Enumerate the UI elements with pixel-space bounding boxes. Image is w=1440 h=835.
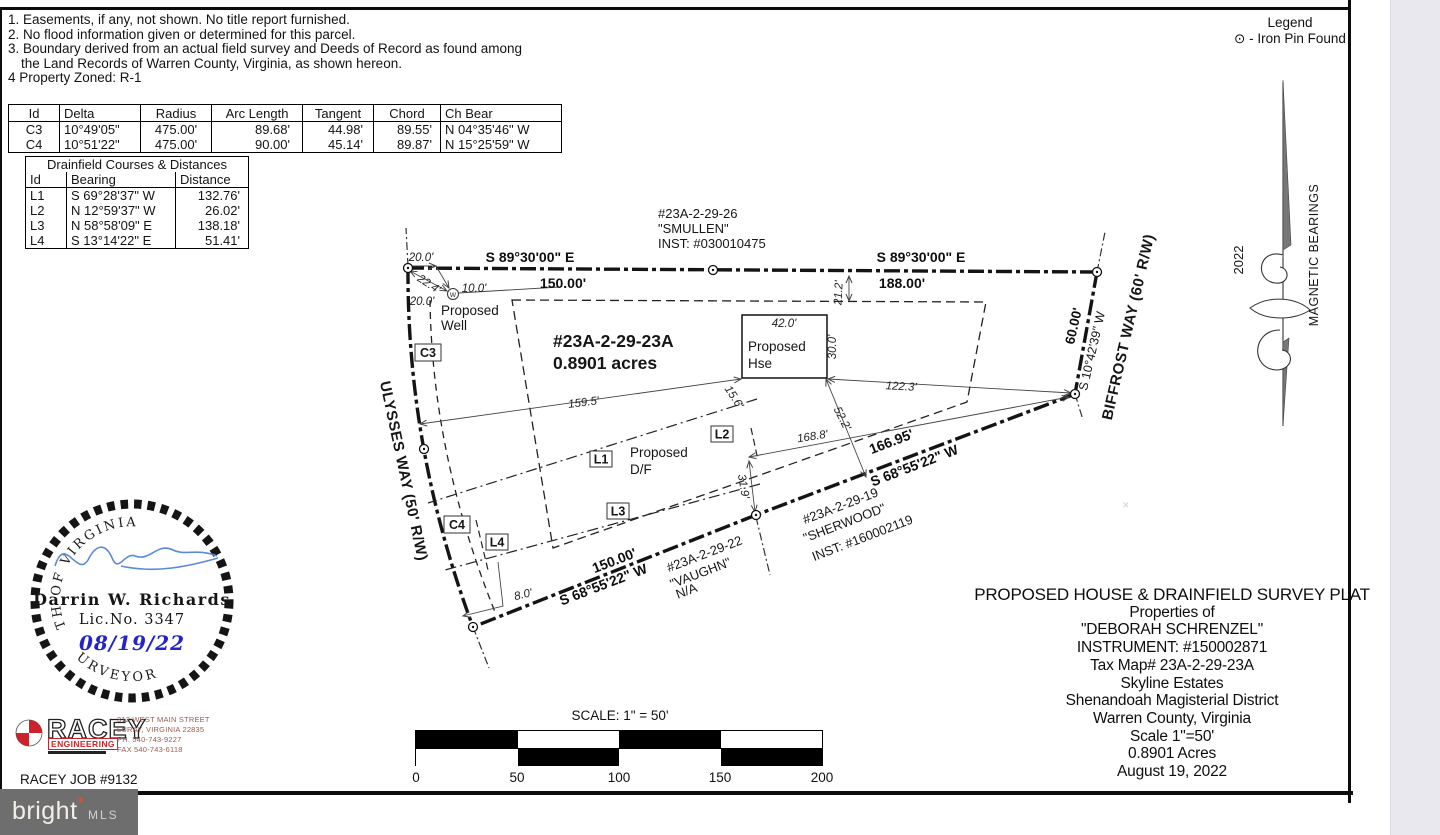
iron-pin-icon <box>404 264 413 273</box>
plat-title: PROPOSED HOUSE & DRAINFIELD SURVEY PLAT <box>973 586 1371 604</box>
scale-tick: 0 <box>412 770 420 785</box>
plat-date: August 19, 2022 <box>973 763 1371 781</box>
cell-id: L4 <box>26 233 67 249</box>
scale-bar-graphic <box>415 730 823 766</box>
cell-id: L1 <box>26 188 67 204</box>
boundary-south-east <box>756 394 1075 515</box>
col-header: Delta <box>60 105 141 122</box>
curve-table-row: C4 10°51'22" 475.00' 90.00' 45.14' 89.87… <box>9 137 562 153</box>
north-arrow-year: 2022 <box>1231 246 1246 275</box>
cell-radius: 475.00' <box>141 122 212 138</box>
magnetic-bearings-label: MAGNETIC BEARINGS <box>1307 184 1321 327</box>
cell-bearing: N 12°59'37" W <box>67 203 176 218</box>
surveyor-seal: COMMONWEALTH OF VIRGINIA LAND SURVEYOR D… <box>25 494 240 709</box>
course-tag-l2: L2 <box>715 428 730 442</box>
cell-id: L2 <box>26 203 67 218</box>
cell-chord: 89.87' <box>374 137 441 153</box>
col-header: Tangent <box>303 105 374 122</box>
cell-delta: 10°51'22" <box>60 137 141 153</box>
cell-tangent: 44.98' <box>303 122 374 138</box>
house-depth: 30.0' <box>827 334 839 359</box>
title-block: PROPOSED HOUSE & DRAINFIELD SURVEY PLAT … <box>973 586 1371 781</box>
viewer-right-margin <box>1390 0 1440 835</box>
dim-8-0: 8.0' <box>513 587 534 603</box>
district-name: Shenandoah Magisterial District <box>973 692 1371 710</box>
brightmls-star-icon: ✶ <box>76 794 85 807</box>
cell-id: C3 <box>9 122 60 138</box>
scale-segment <box>416 749 518 766</box>
scale-tick: 200 <box>811 770 834 785</box>
cell-bearing: S 69°28'37" W <box>67 188 176 204</box>
north-bearing-east: S 89°30'00" E <box>877 249 966 265</box>
col-header: Distance <box>176 172 249 188</box>
iron-pin-icon <box>709 266 718 275</box>
note-line: 1. Easements, if any, not shown. No titl… <box>8 13 522 28</box>
racey-address-line: 312 WEST MAIN STREET <box>117 715 210 725</box>
col-header: Id <box>9 105 60 122</box>
well-dim-224: 22.4' <box>414 272 443 296</box>
curve-table-row: C3 10°49'05" 475.00' 89.68' 44.98' 89.55… <box>9 122 562 138</box>
scale-bar-title: SCALE: 1" = 50' <box>413 708 827 723</box>
iron-pin-icon <box>420 445 429 454</box>
cell-arc: 90.00' <box>212 137 303 153</box>
drainfield-header-row: Id Bearing Distance <box>26 172 249 188</box>
drainfield-table: Drainfield Courses & Distances Id Bearin… <box>25 156 249 249</box>
course-tag-l3: L3 <box>611 505 626 519</box>
drainfield-row: L2 N 12°59'37" W 26.02' <box>26 203 249 218</box>
col-header: Ch Bear <box>441 105 562 122</box>
drainfield-row: L3 N 58°58'09" E 138.18' <box>26 218 249 233</box>
ulysses-way-label: ULYSSES WAY (50' R/W) <box>376 380 431 563</box>
page-border-top <box>0 7 1351 10</box>
scale-segment <box>518 731 620 748</box>
curve-tag-c3: C3 <box>420 346 436 360</box>
title-line: Properties of <box>973 604 1371 622</box>
survey-plat-page: { "notes": { "lines": [ "1. Easements, i… <box>0 0 1440 835</box>
curve-tag-c4: C4 <box>449 518 465 532</box>
page-border-right <box>1348 0 1351 803</box>
note-line: 2. No flood information given or determi… <box>8 28 522 43</box>
parcel-divider-line <box>756 517 770 575</box>
stray-mark: ✕ <box>1122 500 1130 511</box>
note-line: the Land Records of Warren County, Virgi… <box>8 57 522 72</box>
iron-pin-icon <box>752 511 761 520</box>
cell-arc: 89.68' <box>212 122 303 138</box>
cell-bear: N 04°35'46" W <box>441 122 562 138</box>
parcel-id: #23A-2-29-23A <box>553 331 674 351</box>
general-notes: 1. Easements, if any, not shown. No titl… <box>8 13 522 86</box>
iron-pin-icon <box>469 623 478 632</box>
scale-segment <box>518 749 620 766</box>
cell-bearing: N 58°58'09" E <box>67 218 176 233</box>
course-tag-l1: L1 <box>594 453 609 467</box>
curve-table-header-row: Id Delta Radius Arc Length Tangent Chord… <box>9 105 562 122</box>
dim-31-9: 31.9' <box>735 473 751 500</box>
cell-id: L3 <box>26 218 67 233</box>
surveyor-license: Lic.No. 3347 <box>79 612 185 628</box>
racey-job-number: RACEY JOB #9132 <box>20 772 138 787</box>
scale-tick: 150 <box>709 770 732 785</box>
scale-note: Scale 1"=50' <box>973 728 1371 746</box>
racey-address: 312 WEST MAIN STREET LURAY, VIRGINIA 228… <box>117 715 210 755</box>
cell-distance: 26.02' <box>176 203 249 218</box>
scale-bar: SCALE: 1" = 50' 0 50 100 150 200 <box>413 708 827 786</box>
scale-tick: 100 <box>608 770 631 785</box>
cell-bearing: S 13°14'22" E <box>67 233 176 249</box>
note-line: 3. Boundary derived from an actual field… <box>8 42 522 57</box>
cell-chord: 89.55' <box>374 122 441 138</box>
scale-bar-ticks: 0 50 100 150 200 <box>413 770 827 786</box>
col-header: Radius <box>141 105 212 122</box>
biffrost-way-label: BIFFROST WAY (60' R/W) <box>1099 232 1158 421</box>
drainfield-table-title: Drainfield Courses & Distances <box>26 157 249 173</box>
racey-logo-underline <box>48 751 106 754</box>
iron-pin-icon: ⊙ <box>1234 31 1245 46</box>
surveyor-name: Darrin W. Richards <box>33 590 231 609</box>
boundary-north <box>408 268 1097 272</box>
acreage-note: 0.8901 Acres <box>973 745 1371 763</box>
course-tag-l4: L4 <box>490 536 505 550</box>
dim-21-2: 21.2' <box>832 279 845 306</box>
smullen-parcel-inst: INST: #030010475 <box>658 236 766 251</box>
page-border-left <box>0 7 2 794</box>
scale-segment <box>416 731 518 748</box>
instrument-number: INSTRUMENT: #150002871 <box>973 639 1371 657</box>
proposed-df-label-1: Proposed <box>630 445 688 460</box>
racey-logo-icon <box>14 718 44 748</box>
proposed-well-label-2: Well <box>441 318 467 333</box>
brightmls-brand: bright <box>12 797 78 826</box>
proposed-df-label-2: D/F <box>630 462 652 477</box>
note-line: 4 Property Zoned: R-1 <box>8 71 522 86</box>
county-name: Warren County, Virginia <box>973 710 1371 728</box>
tax-map-number: Tax Map# 23A-2-29-23A <box>973 657 1371 675</box>
biffrost-distance: 60.00' <box>1062 306 1085 345</box>
proposed-well-label-1: Proposed <box>441 303 499 318</box>
drainfield-row: L1 S 69°28'37" W 132.76' <box>26 188 249 204</box>
racey-fax: FAX 540-743-6118 <box>117 745 210 755</box>
racey-address-line: LURAY, VIRGINIA 22835 <box>117 725 210 735</box>
well-dim-20b: 20.0' <box>409 296 435 308</box>
iron-pin-icon <box>1093 268 1102 277</box>
north-bearing-west: S 89°30'00" E <box>486 249 575 265</box>
house-label-1: Proposed <box>748 339 806 354</box>
curve-table: Id Delta Radius Arc Length Tangent Chord… <box>8 104 562 153</box>
smullen-parcel-id: #23A-2-29-26 <box>658 206 738 221</box>
cell-id: C4 <box>9 137 60 153</box>
racey-phone: PH. 540-743-9227 <box>117 735 210 745</box>
col-header: Arc Length <box>212 105 303 122</box>
compass-needle-icon <box>1250 80 1310 426</box>
brightmls-watermark: bright ✶ MLS <box>0 789 138 835</box>
cell-distance: 51.41' <box>176 233 249 249</box>
drainfield-row: L4 S 13°14'22" E 51.41' <box>26 233 249 249</box>
cell-tangent: 45.14' <box>303 137 374 153</box>
smullen-parcel-name: "SMULLEN" <box>658 221 729 236</box>
col-header: Chord <box>374 105 441 122</box>
racey-engineering-label: ENGINEERING <box>48 738 118 750</box>
iron-pin-icon <box>1071 390 1080 399</box>
cell-distance: 132.76' <box>176 188 249 204</box>
dimension-lines <box>410 266 1071 616</box>
well-dim-10: 10.0' <box>462 283 487 295</box>
legend-item-label: - Iron Pin Found <box>1249 31 1346 46</box>
well-symbol-letter: W <box>450 292 457 299</box>
brightmls-suffix: MLS <box>88 808 119 822</box>
scale-segment <box>619 731 721 748</box>
north-distance-east: 188.00' <box>879 275 925 291</box>
col-header: Bearing <box>67 172 176 188</box>
seal-date: 08/19/22 <box>79 631 185 655</box>
cell-radius: 475.00' <box>141 137 212 153</box>
cell-distance: 138.18' <box>176 218 249 233</box>
page-border-bottom <box>0 791 1353 795</box>
scale-tick: 50 <box>509 770 524 785</box>
scale-segment <box>619 749 721 766</box>
scale-segment <box>721 731 823 748</box>
parcel-area: 0.8901 acres <box>553 353 657 373</box>
cell-bear: N 15°25'59" W <box>441 137 562 153</box>
subdivision-name: Skyline Estates <box>973 675 1371 693</box>
north-distance-west: 150.00' <box>540 275 586 291</box>
proposed-well-symbol: W <box>448 289 459 300</box>
dim-52-2: 52.2' <box>831 405 853 433</box>
house-width: 42.0' <box>772 318 797 330</box>
racey-engineering-block: RACEY ENGINEERING 312 WEST MAIN STREET L… <box>14 712 244 777</box>
cell-delta: 10°49'05" <box>60 122 141 138</box>
dim-122-3: 122.3' <box>885 380 917 394</box>
owner-name: "DEBORAH SCHRENZEL" <box>973 621 1371 639</box>
dim-159-5: 159.5' <box>568 395 601 411</box>
col-header: Id <box>26 172 67 188</box>
house-label-2: Hse <box>748 356 772 371</box>
well-dim-20a: 20.0' <box>408 252 434 264</box>
dim-15-6: 15.6' <box>722 384 746 412</box>
scale-segment <box>721 749 823 766</box>
north-arrow: 2022 MAGNETIC BEARINGS <box>1230 70 1400 440</box>
